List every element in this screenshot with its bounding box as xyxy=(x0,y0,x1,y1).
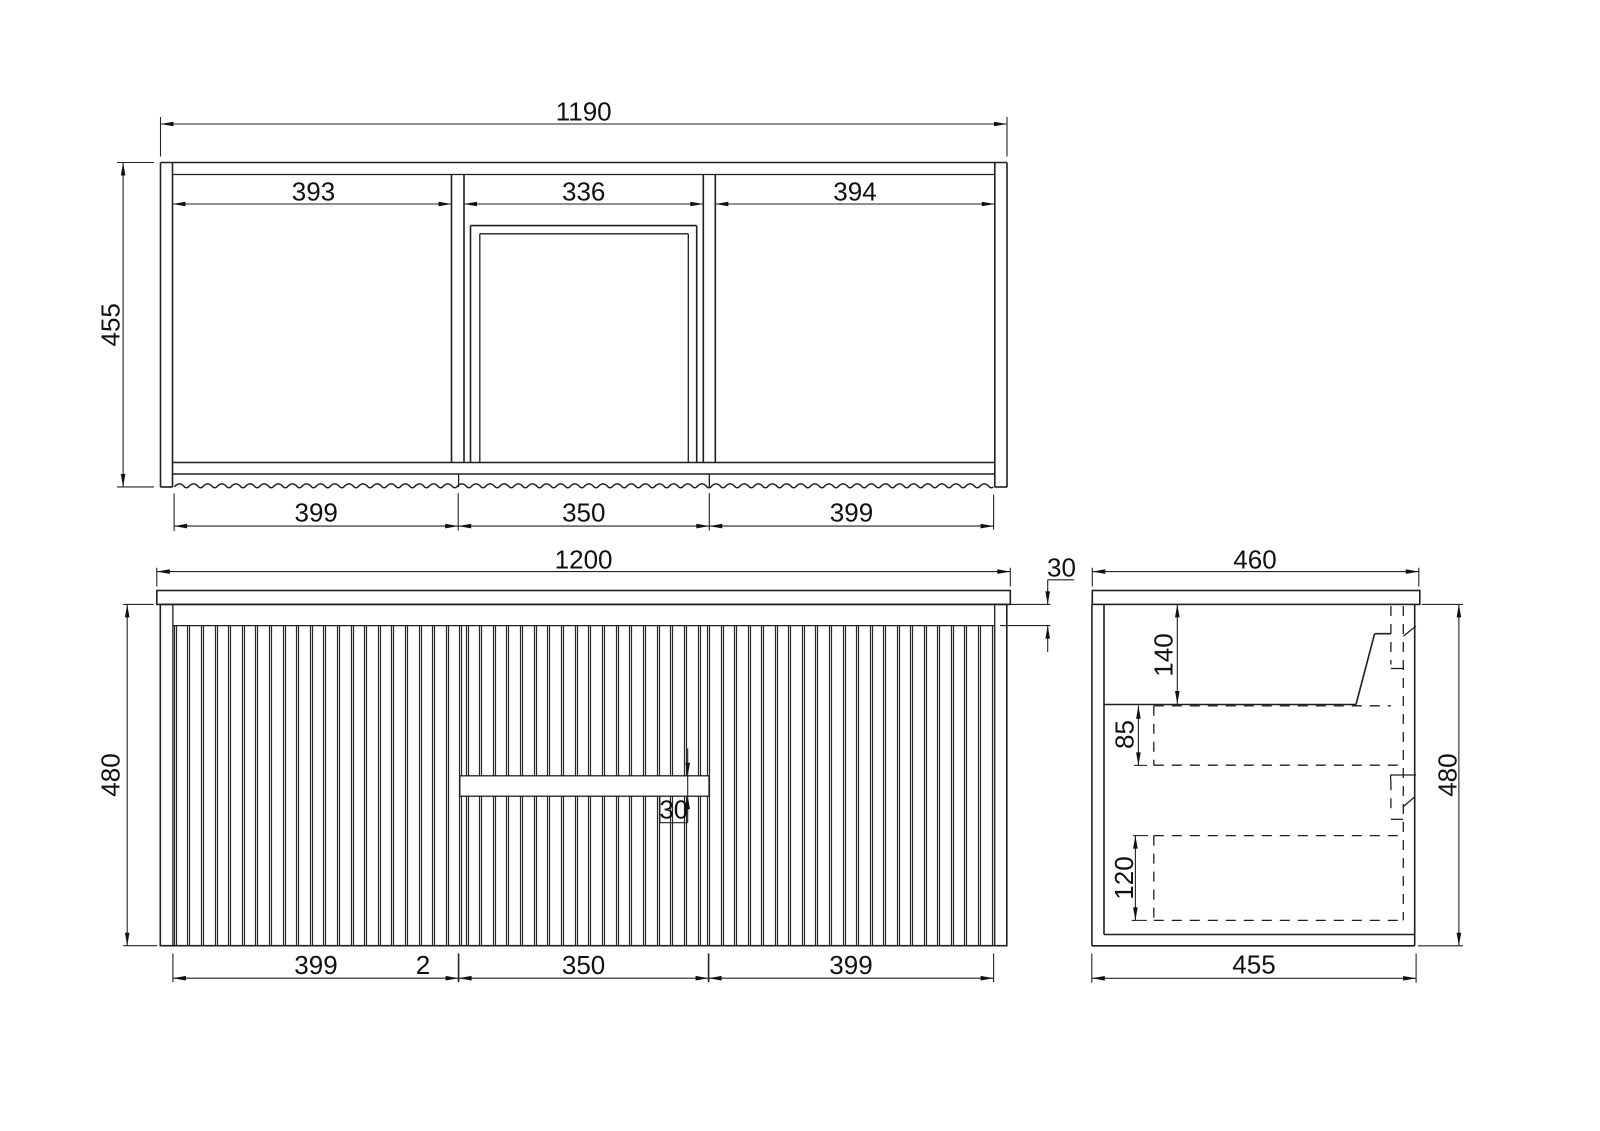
svg-text:336: 336 xyxy=(562,176,605,206)
svg-text:460: 460 xyxy=(1233,545,1276,575)
svg-text:399: 399 xyxy=(294,950,337,980)
svg-text:140: 140 xyxy=(1149,633,1179,676)
svg-text:30: 30 xyxy=(1047,553,1076,583)
svg-text:399: 399 xyxy=(830,498,873,528)
svg-text:1190: 1190 xyxy=(556,97,612,127)
svg-text:455: 455 xyxy=(1232,950,1275,980)
svg-text:399: 399 xyxy=(295,498,338,528)
svg-text:455: 455 xyxy=(96,303,126,346)
svg-text:350: 350 xyxy=(562,498,605,528)
svg-text:480: 480 xyxy=(96,753,126,796)
svg-text:120: 120 xyxy=(1109,856,1139,899)
svg-text:2: 2 xyxy=(416,950,430,980)
svg-text:30: 30 xyxy=(659,794,688,824)
svg-text:394: 394 xyxy=(833,176,876,206)
svg-text:393: 393 xyxy=(292,176,335,206)
svg-text:1200: 1200 xyxy=(555,545,613,575)
svg-text:399: 399 xyxy=(829,950,872,980)
svg-text:85: 85 xyxy=(1110,720,1140,749)
svg-text:480: 480 xyxy=(1433,753,1463,796)
svg-text:350: 350 xyxy=(562,950,605,980)
